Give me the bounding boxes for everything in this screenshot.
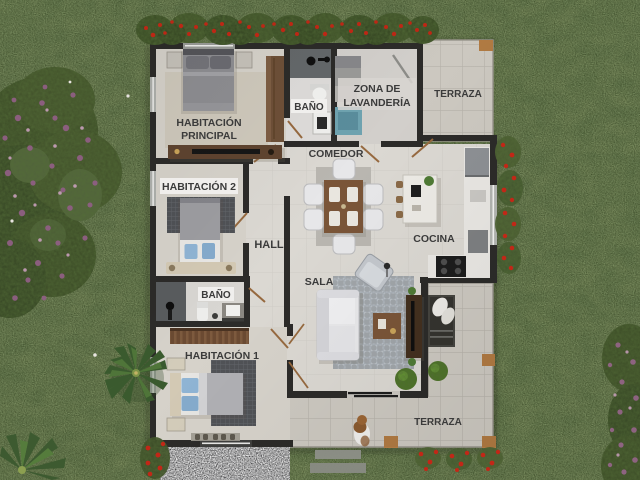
svg-text:COCINA: COCINA [413,233,455,245]
svg-text:HABITACIÓN 2: HABITACIÓN 2 [162,180,236,193]
svg-text:LAVANDERÍA: LAVANDERÍA [343,96,411,109]
svg-text:HABITACIÓN: HABITACIÓN [176,116,241,129]
svg-text:HABITACIÓN 1: HABITACIÓN 1 [185,349,259,362]
svg-text:SALA: SALA [305,276,334,288]
svg-text:ZONA DE: ZONA DE [354,83,401,95]
svg-text:BAÑO: BAÑO [201,288,231,301]
svg-text:TERRAZA: TERRAZA [434,89,482,100]
svg-text:TERRAZA: TERRAZA [414,417,462,428]
svg-text:BAÑO: BAÑO [294,100,324,113]
svg-text:HALL: HALL [254,239,284,251]
svg-text:PRINCIPAL: PRINCIPAL [181,130,237,142]
svg-text:COMEDOR: COMEDOR [309,148,364,160]
